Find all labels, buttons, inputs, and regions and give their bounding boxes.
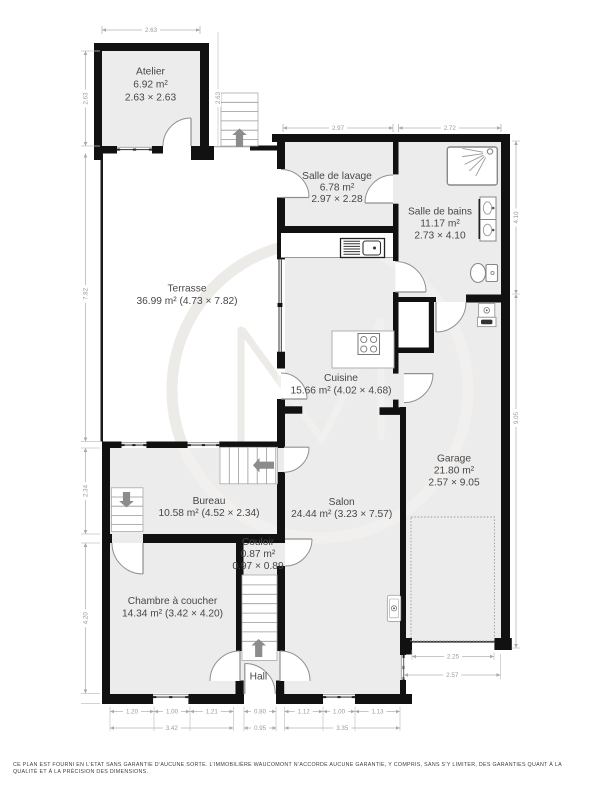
svg-text:36.99 m² (4.73 × 7.82): 36.99 m² (4.73 × 7.82) xyxy=(136,296,237,307)
svg-text:Salle de bains: Salle de bains xyxy=(408,207,472,218)
svg-text:1.20: 1.20 xyxy=(126,709,139,716)
svg-text:1.00: 1.00 xyxy=(333,709,346,716)
svg-text:Salle de lavage: Salle de lavage xyxy=(302,171,372,182)
svg-text:2.34: 2.34 xyxy=(83,484,90,497)
svg-text:1.21: 1.21 xyxy=(206,709,219,716)
svg-text:QUALITÉ ET À LA PRÉCISION DES: QUALITÉ ET À LA PRÉCISION DES DIMENSIONS… xyxy=(13,768,148,775)
svg-text:3.42: 3.42 xyxy=(166,725,179,732)
svg-text:15.66 m² (4.02 × 4.68): 15.66 m² (4.02 × 4.68) xyxy=(290,386,391,397)
svg-text:0.80: 0.80 xyxy=(254,709,267,716)
svg-text:Atelier: Atelier xyxy=(136,67,165,78)
svg-text:Couloir: Couloir xyxy=(242,537,275,548)
svg-text:3.35: 3.35 xyxy=(336,725,349,732)
svg-text:2.57 × 9.05: 2.57 × 9.05 xyxy=(428,478,480,489)
svg-text:Garage: Garage xyxy=(437,454,471,465)
svg-text:Terrasse: Terrasse xyxy=(167,284,206,295)
svg-text:2.57: 2.57 xyxy=(446,672,459,679)
svg-text:10.58 m² (4.52 × 2.34): 10.58 m² (4.52 × 2.34) xyxy=(158,508,259,519)
svg-text:2.25: 2.25 xyxy=(447,654,460,661)
svg-text:2.63: 2.63 xyxy=(145,27,158,34)
svg-text:Cuisine: Cuisine xyxy=(324,373,358,384)
svg-text:2.63 × 2.63: 2.63 × 2.63 xyxy=(125,93,177,104)
svg-text:7.82: 7.82 xyxy=(83,287,90,300)
svg-text:2.63: 2.63 xyxy=(83,92,90,105)
svg-text:2.63: 2.63 xyxy=(215,91,222,104)
svg-text:21.80 m²: 21.80 m² xyxy=(434,466,475,477)
svg-text:6.78 m²: 6.78 m² xyxy=(320,183,355,194)
svg-text:14.34 m² (3.42 × 4.20): 14.34 m² (3.42 × 4.20) xyxy=(122,609,223,620)
svg-text:2.72: 2.72 xyxy=(444,125,457,132)
svg-text:11.17 m²: 11.17 m² xyxy=(420,219,460,230)
svg-text:Hall: Hall xyxy=(250,672,268,683)
svg-text:Bureau: Bureau xyxy=(193,496,226,507)
svg-text:Chambre à coucher: Chambre à coucher xyxy=(128,596,218,607)
svg-text:24.44 m² (3.23 × 7.57): 24.44 m² (3.23 × 7.57) xyxy=(291,509,392,520)
svg-text:2.97: 2.97 xyxy=(332,125,345,132)
svg-text:0.95: 0.95 xyxy=(254,725,267,732)
svg-text:1.00: 1.00 xyxy=(166,709,179,716)
svg-text:4.10: 4.10 xyxy=(513,211,520,224)
svg-text:Salon: Salon xyxy=(329,497,355,508)
svg-text:6.92 m²: 6.92 m² xyxy=(133,80,168,91)
svg-text:1.12: 1.12 xyxy=(298,709,311,716)
svg-text:0.87 m²: 0.87 m² xyxy=(241,549,276,560)
svg-text:CE PLAN EST FOURNI EN L’ETAT S: CE PLAN EST FOURNI EN L’ETAT SANS GARANT… xyxy=(13,761,562,768)
svg-text:4.20: 4.20 xyxy=(83,612,90,625)
svg-text:0.97 × 0.89: 0.97 × 0.89 xyxy=(232,561,284,572)
svg-text:1.13: 1.13 xyxy=(371,709,384,716)
svg-text:9.05: 9.05 xyxy=(513,411,520,424)
svg-text:2.73 × 4.10: 2.73 × 4.10 xyxy=(414,231,466,242)
svg-text:2.97 × 2.28: 2.97 × 2.28 xyxy=(311,194,363,205)
